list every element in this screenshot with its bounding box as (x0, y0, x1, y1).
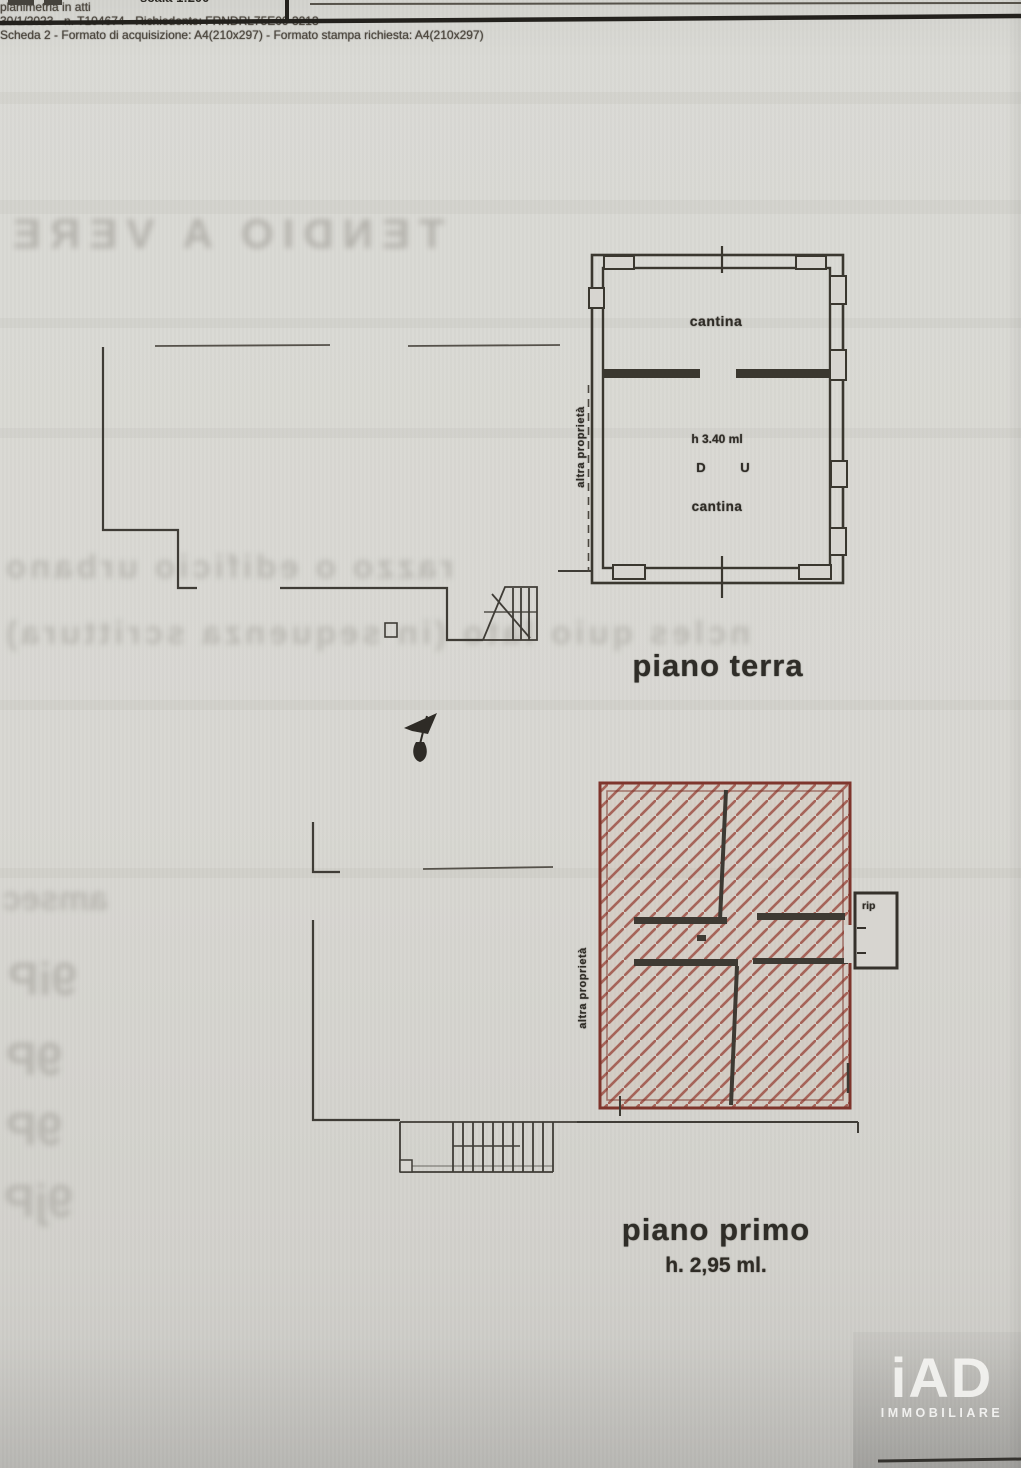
header-scale-fragment: scala 1:200 (140, 0, 280, 9)
scanned-floor-plan-page: TENDIO A VERE razzo o edificio urbano nc… (0, 0, 1021, 1468)
height-note-ground: h 3.40 ml (691, 432, 742, 446)
brand-logo: iAD IMMOBILIARE (872, 1348, 1012, 1420)
site-lines-ground (103, 345, 592, 640)
caption-piano-primo: piano primo (622, 1212, 810, 1248)
north-arrow-icon (404, 713, 437, 762)
stairs-first (400, 1122, 597, 1172)
door-mark-u: U (740, 460, 749, 475)
height-note-first: h. 2,95 ml. (665, 1254, 767, 1278)
boundary-label-ground: altra proprietà (575, 406, 587, 487)
annex-label-rip: rip (862, 900, 875, 912)
bottom-rule (878, 1459, 1021, 1461)
logo-wordmark: iAD (872, 1348, 1012, 1408)
first-floor-plan (600, 783, 897, 1116)
room-label-cantina-lower: cantina (692, 499, 743, 514)
boundary-label-first: altra proprietà (577, 947, 589, 1028)
plan-drawing (0, 0, 1021, 1468)
logo-subtitle: IMMOBILIARE (872, 1406, 1012, 1420)
room-label-cantina-upper: cantina (690, 313, 743, 329)
stairs-ground (483, 587, 537, 640)
door-mark-d: D (696, 460, 705, 475)
caption-piano-terra: piano terra (632, 648, 803, 684)
ground-floor-plan (589, 246, 847, 598)
